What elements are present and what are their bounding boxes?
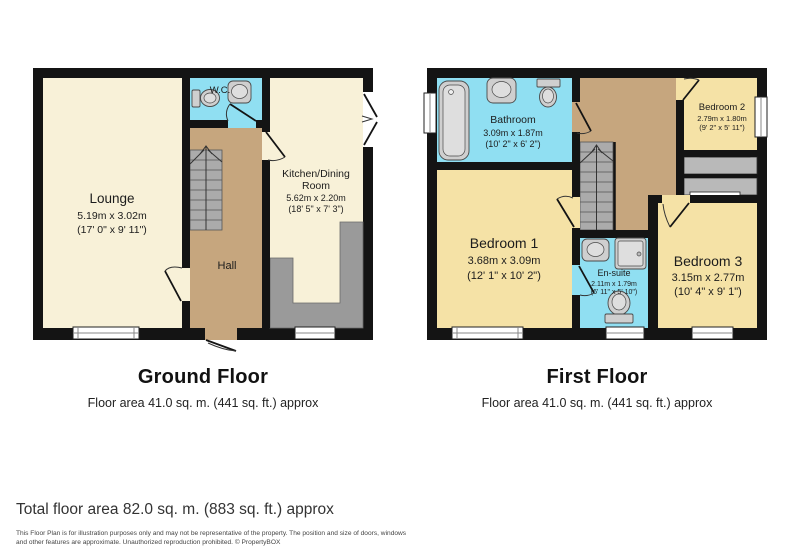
- first-floor-plan: Bathroom 3.09m x 1.87m (10' 2" x 6' 2") …: [417, 55, 777, 355]
- wc-label: W.C.: [210, 85, 231, 96]
- bathroom-dims-ft: (10' 2" x 6' 2"): [485, 139, 540, 149]
- ensuite-dims-ft: (6' 11" x 5' 10"): [591, 289, 637, 296]
- bathroom-sink-fixture: [487, 78, 516, 103]
- staircase-first: [580, 142, 615, 230]
- kitchen-dims-m: 5.62m x 2.20m: [286, 193, 346, 203]
- lounge-label: Lounge: [89, 191, 134, 206]
- bedroom2-label: Bedroom 2: [699, 102, 745, 113]
- ground-floor-area: Floor area 41.0 sq. m. (441 sq. ft.) app…: [23, 396, 383, 410]
- ground-floor-title: Ground Floor: [23, 366, 383, 389]
- bedroom1-dims-ft: (12' 1" x 10' 2"): [467, 270, 541, 282]
- ground-floor-plan: Lounge 5.19m x 3.02m (17' 0" x 9' 11") W…: [23, 55, 383, 355]
- disclaimer: This Floor Plan is for illustration purp…: [16, 529, 406, 547]
- bathroom-window: [424, 93, 436, 133]
- bedroom2-window: [755, 97, 767, 137]
- wc-sink-fixture: [228, 81, 251, 103]
- bedroom3-label: Bedroom 3: [674, 253, 743, 269]
- ensuite-dims-m: 2.11m x 1.79m: [591, 281, 637, 288]
- kitchen-dims-ft: (18' 5" x 7' 3"): [288, 204, 343, 214]
- first-floor-titleblock: First Floor Floor area 41.0 sq. m. (441 …: [417, 366, 777, 410]
- kitchen-label-line2: Room: [302, 180, 330, 192]
- disclaimer-line2: and other features are approximate. Unau…: [16, 538, 406, 547]
- ensuite-window: [606, 327, 644, 339]
- disclaimer-line1: This Floor Plan is for illustration purp…: [16, 529, 406, 538]
- front-door: [205, 328, 237, 351]
- bedroom2-dims-ft: (9' 2" x 5' 11"): [699, 123, 745, 132]
- bedroom2-dims-m: 2.79m x 1.80m: [697, 114, 747, 123]
- hall-label: Hall: [218, 260, 237, 272]
- kitchen-label-line1: Kitchen/Dining: [282, 168, 350, 180]
- lounge-dims-ft: (17' 0" x 9' 11"): [77, 224, 147, 236]
- bedroom3-dims-ft: (10' 4" x 9' 1"): [674, 286, 742, 298]
- ensuite-label: En-suite: [597, 268, 630, 278]
- lounge-window: [73, 327, 139, 339]
- total-floor-area: Total floor area 82.0 sq. m. (883 sq. ft…: [16, 501, 334, 519]
- bedroom3-window: [692, 327, 733, 339]
- shower-fixture: [615, 238, 646, 269]
- first-floor-title: First Floor: [417, 366, 777, 389]
- bedroom3-dims-m: 3.15m x 2.77m: [672, 272, 745, 284]
- first-floor-area: Floor area 41.0 sq. m. (441 sq. ft.) app…: [417, 396, 777, 410]
- bedroom1-window: [452, 327, 523, 339]
- lounge-dims-m: 5.19m x 3.02m: [77, 210, 147, 222]
- bedroom1-dims-m: 3.68m x 3.09m: [468, 255, 541, 267]
- ground-floor-titleblock: Ground Floor Floor area 41.0 sq. m. (441…: [23, 366, 383, 410]
- kitchen-window: [295, 327, 335, 339]
- french-doors: [362, 92, 377, 147]
- bathtub-fixture: [439, 81, 469, 160]
- bathroom-dims-m: 3.09m x 1.87m: [483, 128, 543, 138]
- staircase: [190, 146, 222, 230]
- floorplan-page: Lounge 5.19m x 3.02m (17' 0" x 9' 11") W…: [0, 0, 800, 560]
- ensuite-sink-fixture: [582, 239, 609, 261]
- bedroom1-label: Bedroom 1: [470, 235, 539, 251]
- cupboards: [684, 151, 757, 198]
- bathroom-label: Bathroom: [490, 114, 536, 126]
